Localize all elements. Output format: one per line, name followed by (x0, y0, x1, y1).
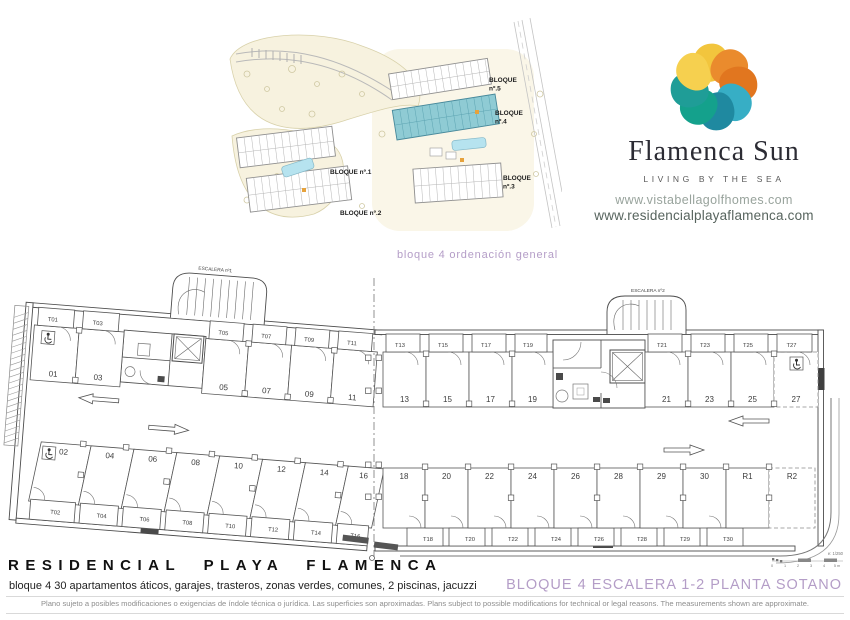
parking-stall: 26 (554, 468, 597, 528)
parking-stall: R2 (769, 468, 815, 528)
storage-label: T23 (700, 343, 710, 349)
storage-label: T04 (96, 513, 107, 520)
column (366, 494, 372, 500)
column (508, 464, 514, 470)
storage-label: T06 (139, 517, 149, 524)
column (123, 444, 129, 450)
stall-label: 27 (792, 395, 801, 404)
scale-tick-label: 5 m (834, 564, 840, 568)
storage-label: T25 (743, 343, 753, 349)
column (366, 388, 372, 394)
wheelchair-icon (41, 331, 55, 345)
scale-tick-label: 3 (810, 564, 812, 568)
scale-tick-label: 1 (784, 564, 786, 568)
column (508, 495, 514, 501)
storage-label: T05 (218, 330, 228, 337)
column (766, 464, 772, 470)
parking-stall: 25 (731, 352, 774, 407)
stall-label: 01 (48, 369, 58, 379)
column (376, 462, 382, 468)
storage-label: T18 (423, 537, 433, 543)
stall-label: 26 (571, 472, 580, 481)
stall-label: 11 (348, 393, 358, 403)
stall-label: 14 (319, 468, 329, 478)
column (246, 341, 252, 347)
stall-label: 08 (191, 458, 201, 468)
column (78, 472, 84, 478)
storage-label: T08 (182, 520, 192, 527)
parking-stall: 18 (383, 468, 425, 528)
parking-stall: 13 (383, 352, 426, 407)
storage-label: T14 (311, 530, 322, 537)
column (166, 448, 172, 454)
stall-label: 16 (359, 471, 369, 481)
column (422, 495, 428, 501)
wheelchair-icon (790, 357, 803, 370)
parking-stall: 15 (426, 352, 469, 407)
scale-tick-label: 0 (771, 564, 773, 568)
floor-plan-drawing: ESCALERA nº101T0103T0305T0507T0709T0911T… (0, 0, 850, 620)
stall-label: 19 (528, 395, 537, 404)
column (685, 401, 691, 407)
column (766, 495, 772, 501)
storage-label: T29 (680, 537, 690, 543)
divider-line (6, 596, 844, 597)
stall-label: 20 (442, 472, 451, 481)
column (376, 355, 382, 361)
column (252, 454, 258, 460)
project-title: RESIDENCIAL PLAYA FLAMENCA (8, 557, 442, 574)
column (376, 494, 382, 500)
storage-label: T19 (523, 343, 533, 349)
parking-stall: 27 (774, 352, 818, 407)
column (328, 397, 334, 403)
column (423, 351, 429, 357)
parking-stall: 30 (683, 468, 726, 528)
column (680, 464, 686, 470)
column (422, 464, 428, 470)
parking-stall: 28 (597, 468, 640, 528)
storage-label: T07 (261, 334, 271, 341)
stall-label: 17 (486, 395, 495, 404)
scale-tick-label: 4 (823, 564, 825, 568)
brochure-page: BLOQUE nº.1BLOQUE nº.2BLOQUEnº.3BLOQUEnº… (0, 0, 850, 620)
stall-label: 10 (234, 461, 244, 471)
column (509, 351, 515, 357)
elevator-shaft (610, 350, 645, 383)
storage-label: T09 (304, 337, 314, 344)
stall-label: 02 (59, 447, 69, 457)
stair-label: ESCALERA nº2 (631, 288, 665, 294)
storage-label: T30 (723, 537, 733, 543)
stair-label: ESCALERA nº1 (198, 266, 232, 275)
stall-label: 30 (700, 472, 709, 481)
column (295, 458, 301, 464)
column (366, 462, 372, 468)
drive-direction-arrow (78, 393, 119, 406)
column (594, 495, 600, 501)
parking-stall: 24 (511, 468, 554, 528)
column (551, 464, 557, 470)
storage-label: T27 (787, 343, 797, 349)
parking-stall: 07 (244, 342, 291, 400)
column (249, 485, 255, 491)
column (335, 492, 341, 498)
column (466, 401, 472, 407)
elevator-shaft (172, 334, 204, 363)
stall-label: 04 (105, 451, 115, 461)
storage-label: T13 (395, 343, 405, 349)
parking-stall: 09 (287, 345, 334, 403)
stall-label: 06 (148, 454, 158, 464)
parking-stall: 05 (202, 338, 249, 396)
stall-label: 03 (93, 373, 103, 383)
scale-bar: e: 1/250012345 m (771, 551, 844, 568)
column (76, 327, 82, 333)
left-wing: ESCALERA nº101T0103T0305T0507T0709T0911T… (0, 252, 399, 552)
scale-label: e: 1/250 (828, 551, 844, 556)
right-wing: ESCALERA nº213T1315T1517T1719T1921T2123T… (375, 288, 839, 563)
stall-label: 28 (614, 472, 623, 481)
stall-label: 23 (705, 395, 714, 404)
drive-direction-arrow (148, 422, 189, 435)
column (509, 401, 515, 407)
parking-stall: 22 (468, 468, 511, 528)
parking-stall: 21 (645, 352, 688, 407)
column (594, 464, 600, 470)
storage-label: T10 (225, 524, 235, 531)
storage-label: T02 (50, 510, 60, 517)
storage-label: T11 (347, 341, 357, 348)
stall-label: R1 (742, 472, 753, 481)
parking-stall: 01 (30, 325, 79, 383)
stall-label: 07 (262, 386, 272, 396)
column (164, 479, 170, 485)
stall-label: 18 (400, 472, 409, 481)
drive-direction-arrow (664, 445, 704, 455)
column (80, 441, 86, 447)
divider-line (6, 613, 844, 614)
stall-label: 12 (277, 464, 287, 474)
parking-stall: 03 (75, 329, 124, 387)
wall (375, 546, 795, 551)
storage-label: T21 (657, 343, 667, 349)
wall (818, 330, 824, 546)
drive-direction-arrow (729, 416, 769, 426)
stall-label: R2 (787, 472, 798, 481)
storage-label: T24 (551, 537, 562, 543)
storage-label: T15 (438, 343, 448, 349)
column (728, 401, 734, 407)
storage-label: T12 (268, 527, 278, 534)
storage-label: T22 (508, 537, 518, 543)
storage-label: T17 (481, 343, 491, 349)
parking-stall: 23 (688, 352, 731, 407)
column (771, 401, 777, 407)
column (376, 388, 382, 394)
column (771, 351, 777, 357)
column (723, 464, 729, 470)
stall-label: 09 (305, 389, 315, 399)
project-subtitle: bloque 4 30 apartamentos áticos, garajes… (9, 580, 477, 592)
stall-label: 05 (219, 383, 229, 393)
column (72, 377, 78, 383)
parking-stall: 19 (512, 352, 553, 407)
column (423, 401, 429, 407)
storage-label: T20 (465, 537, 475, 543)
stall-label: 15 (443, 395, 452, 404)
column (242, 390, 248, 396)
fixture (556, 373, 563, 380)
stall-label: 21 (662, 395, 671, 404)
staircase: ESCALERA nº1 (170, 264, 268, 325)
stall-label: 24 (528, 472, 537, 481)
fixture (593, 397, 600, 402)
parking-stall: 20 (425, 468, 468, 528)
fixture (157, 376, 164, 383)
column (331, 347, 337, 353)
stall-label: 13 (400, 395, 409, 404)
column (366, 355, 372, 361)
wheelchair-icon (42, 446, 56, 460)
sheet-title: BLOQUE 4 ESCALERA 1-2 PLANTA SOTANO (506, 577, 842, 593)
column (209, 451, 215, 457)
storage-label: T28 (637, 537, 647, 543)
disclaimer-text: Plano sujeto a posibles modificaciones o… (0, 599, 850, 608)
column (285, 394, 291, 400)
column (465, 464, 471, 470)
column (637, 464, 643, 470)
column (338, 461, 344, 467)
stall-label: 29 (657, 472, 666, 481)
storage-label: T26 (594, 537, 604, 543)
stall-label: 22 (485, 472, 494, 481)
staircase: ESCALERA nº2 (607, 288, 686, 334)
column (685, 351, 691, 357)
storage-label: T03 (92, 321, 102, 328)
fixture (603, 398, 610, 403)
parking-stall: 29 (640, 468, 683, 528)
storage-label: T01 (48, 317, 58, 324)
stall-label: 25 (748, 395, 757, 404)
parking-stall: R1 (726, 468, 769, 528)
column (680, 495, 686, 501)
parking-stall: 17 (469, 352, 512, 407)
scale-tick-label: 2 (797, 564, 799, 568)
